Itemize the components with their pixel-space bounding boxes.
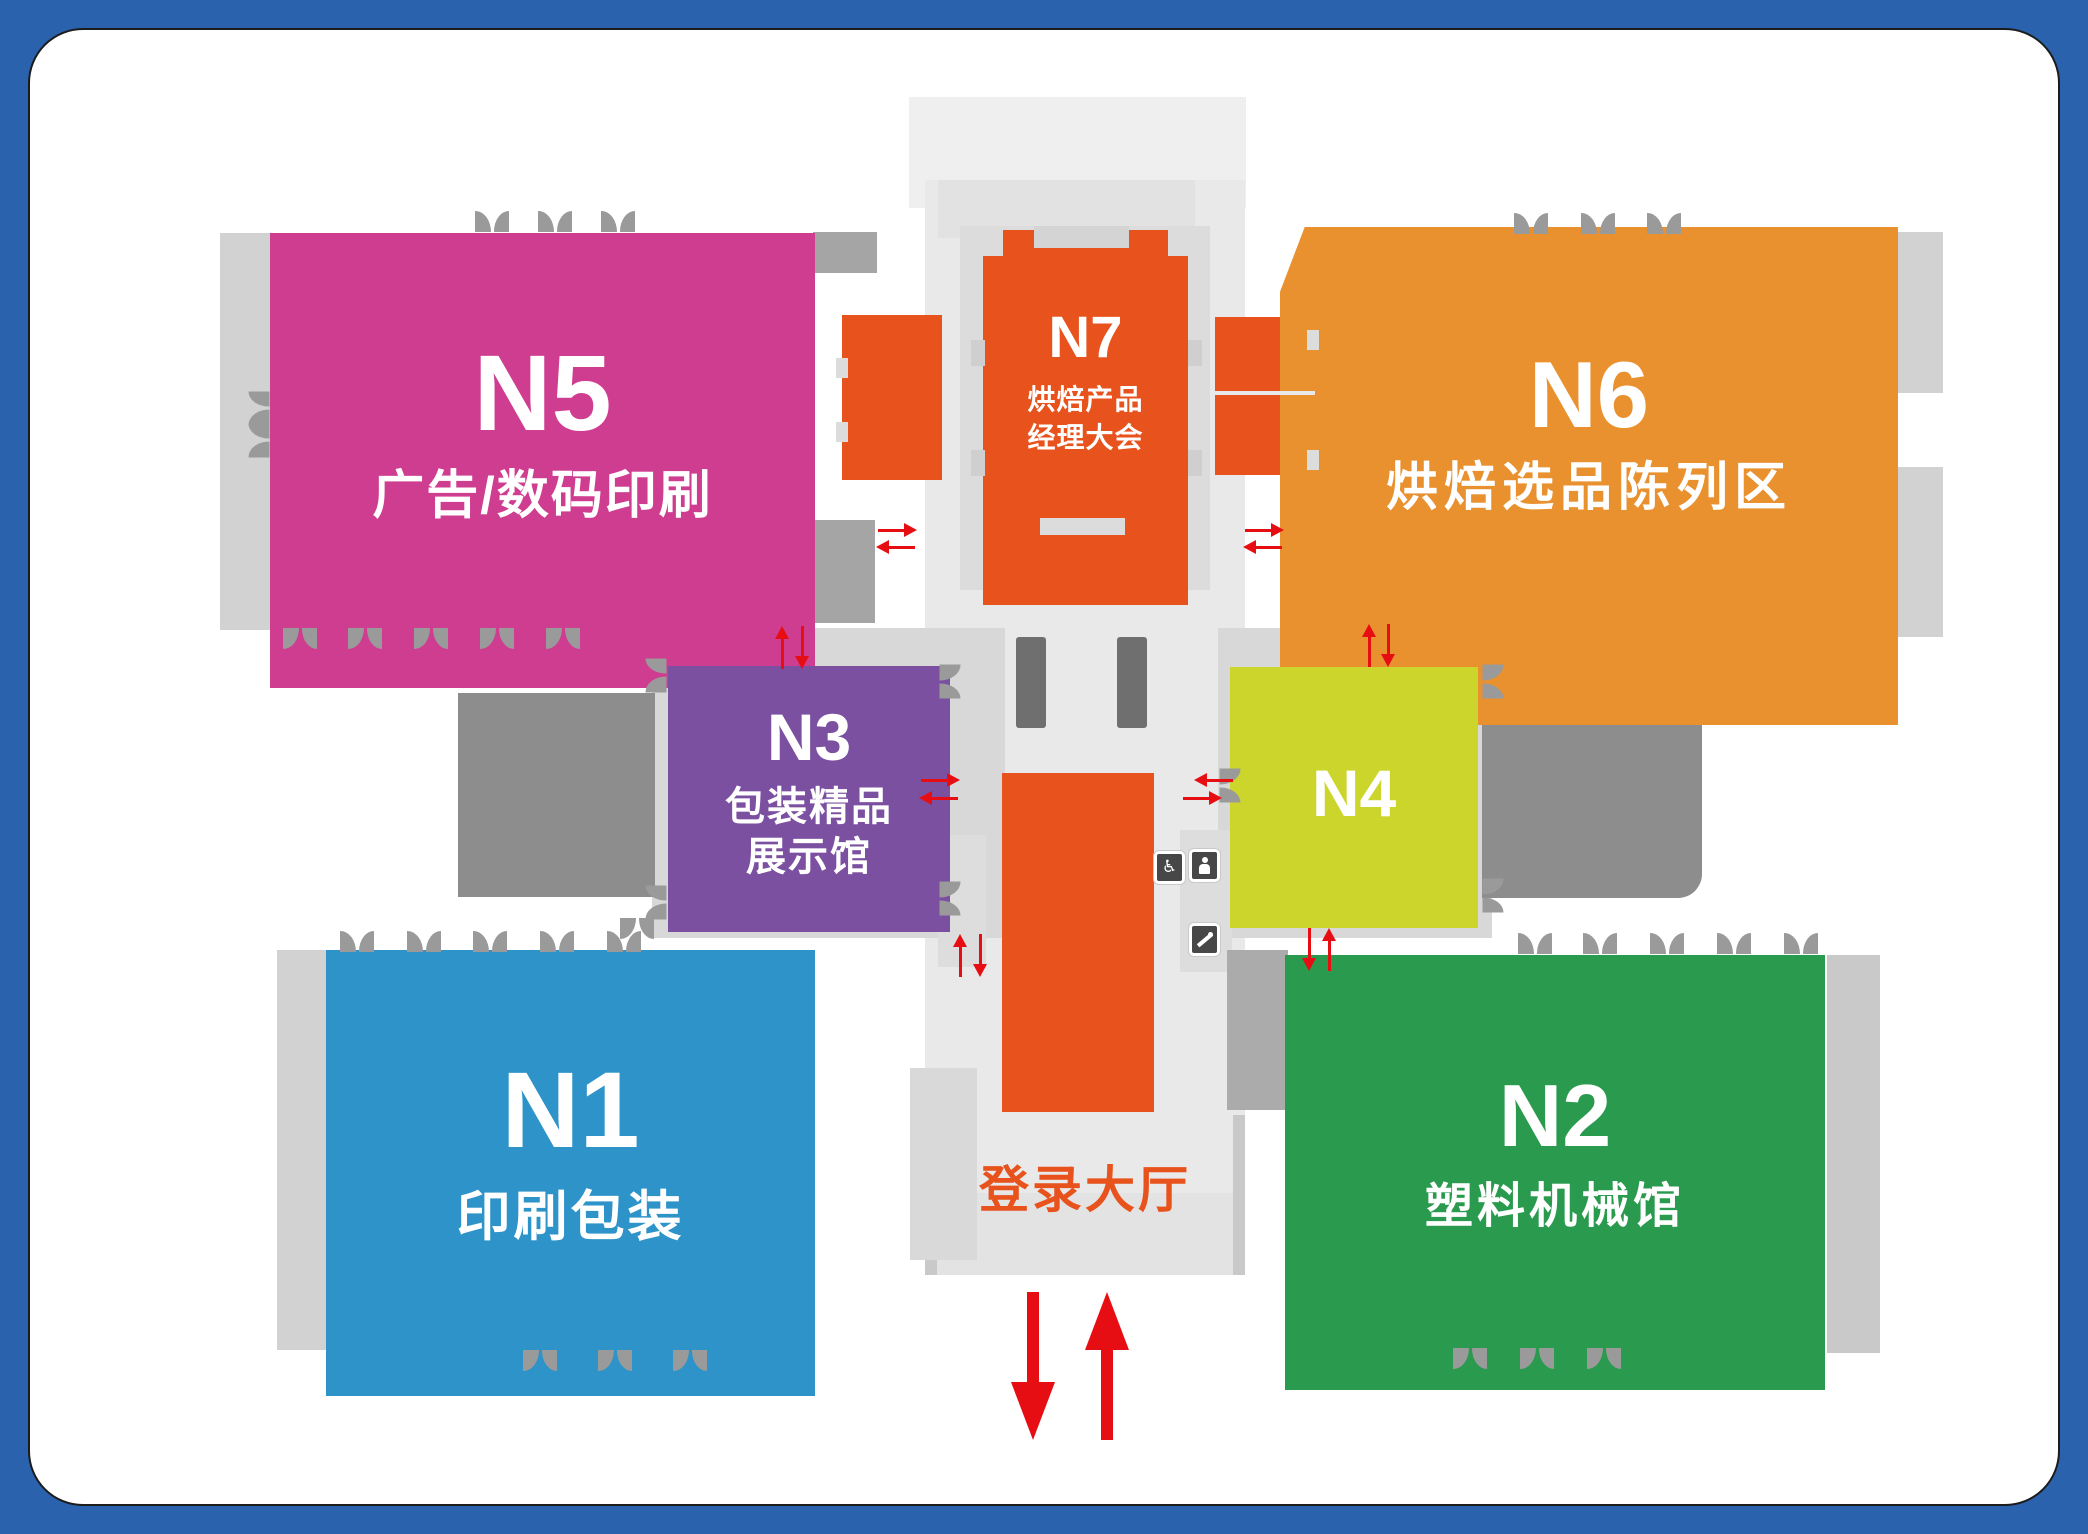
- exhibition-floor-plan: { "map": { "title_context": "exhibition-…: [0, 0, 2088, 1534]
- escalator-left: [1016, 637, 1046, 728]
- entry-arrow-l: [1207, 779, 1233, 782]
- door-swing-icon: [646, 659, 667, 693]
- annex-notch: [1307, 330, 1319, 350]
- door-swing-icon: [340, 931, 374, 952]
- wheelchair-icon: ♿: [1154, 851, 1185, 884]
- door-swing-icon: [1518, 933, 1552, 954]
- hall-n3-region[interactable]: N3 包装精品 展示馆: [668, 666, 950, 932]
- door-swing-icon: [1220, 769, 1241, 803]
- hall-n6-right-strip-bottom: [1898, 467, 1943, 637]
- door-swing-icon: [601, 211, 635, 232]
- entry-arrow-r: [1183, 797, 1209, 800]
- entry-arrow-r: [921, 779, 947, 782]
- entry-arrow-d: [1387, 624, 1390, 654]
- annex-notch: [1307, 450, 1319, 470]
- hall-n7-subtitle: 烘焙产品 经理大会: [1027, 381, 1143, 457]
- door-swing-icon: [475, 211, 509, 232]
- entry-arrow-r: [1245, 529, 1271, 532]
- door-swing-icon: [538, 211, 572, 232]
- n7-side-tab: [971, 340, 985, 366]
- door-swing-icon: [940, 882, 961, 916]
- hall-n3-subtitle-line1: 包装精品: [725, 782, 893, 832]
- hall-n3-subtitle: 包装精品 展示馆: [725, 782, 893, 882]
- entry-arrow-l: [889, 546, 915, 549]
- n7-corner-cut-left: [983, 226, 1003, 256]
- door-swing-icon: [407, 931, 441, 952]
- entry-arrow-r: [878, 529, 904, 532]
- door-swing-icon: [523, 1350, 557, 1371]
- hall-n1-region[interactable]: N1 印刷包装: [326, 950, 815, 1396]
- door-swing-icon: [673, 1350, 707, 1371]
- entry-arrow-l: [1256, 546, 1282, 549]
- registration-lobby-region[interactable]: [1002, 773, 1154, 1112]
- hall-n4-label: N4: [1312, 760, 1396, 827]
- door-swing-icon: [1483, 879, 1504, 913]
- entry-arrow-u: [781, 639, 784, 669]
- door-swing-icon: [283, 628, 317, 649]
- hall-n7-label: N7: [1048, 308, 1122, 367]
- hall-n5-bottom-tab: [813, 520, 875, 623]
- door-swing-icon: [1717, 933, 1751, 954]
- hall-n2-label: N2: [1499, 1071, 1612, 1161]
- door-swing-icon: [1483, 665, 1504, 699]
- hall-n2-subtitle: 塑料机械馆: [1425, 1183, 1685, 1232]
- hall-n4-region[interactable]: N4: [1230, 667, 1478, 928]
- n7-corner-cut-right: [1168, 226, 1188, 256]
- door-swing-icon: [646, 886, 667, 920]
- door-swing-icon: [249, 392, 270, 426]
- door-swing-icon: [348, 628, 382, 649]
- entry-arrow-l: [932, 797, 958, 800]
- door-swing-icon: [1647, 213, 1681, 234]
- hall-n5-label: N5: [473, 338, 611, 448]
- entry-arrow-u: [1368, 637, 1371, 667]
- door-swing-icon: [1520, 1348, 1554, 1369]
- door-swing-icon: [414, 628, 448, 649]
- hall-n7-region[interactable]: N7 烘焙产品 经理大会: [983, 230, 1188, 605]
- hall-n1-label: N1: [501, 1055, 639, 1165]
- door-swing-icon: [1784, 933, 1818, 954]
- n7-top-notch: [1034, 226, 1129, 248]
- door-swing-icon: [940, 665, 961, 699]
- hall-n1-subtitle: 印刷包装: [457, 1190, 685, 1245]
- hall-n6-region[interactable]: N6 烘焙选品陈列区: [1280, 227, 1898, 725]
- escalator-icon: [1189, 923, 1220, 956]
- annex-notch: [836, 422, 848, 442]
- entry-arrow-d: [1308, 928, 1311, 958]
- hall-n2-right-strip: [1827, 955, 1880, 1353]
- entry-arrow-u: [1328, 941, 1331, 971]
- hall-n2-topleft-block: [1227, 950, 1288, 1110]
- entry-arrow-u: [959, 947, 962, 977]
- hall-n6-right-strip-top: [1898, 232, 1943, 393]
- hall-n7-subtitle-line1: 烘焙产品: [1027, 381, 1143, 419]
- n7-side-tab: [1188, 340, 1202, 366]
- n7-side-tab: [1188, 450, 1202, 476]
- hall-n3-label: N3: [767, 704, 851, 771]
- door-swing-icon: [1650, 933, 1684, 954]
- hall-n6-label: N6: [1529, 347, 1649, 443]
- door-swing-icon: [1587, 1348, 1621, 1369]
- hall-n5-subtitle: 广告/数码印刷: [372, 470, 712, 523]
- door-swing-icon: [1581, 213, 1615, 234]
- door-swing-icon: [598, 1350, 632, 1371]
- n7-side-tab: [971, 450, 985, 476]
- door-swing-icon: [249, 424, 270, 458]
- door-swing-icon: [1514, 213, 1548, 234]
- service-bar-left: [458, 693, 655, 897]
- exit-arrow-down: [1011, 1292, 1055, 1440]
- annex-divider: [1215, 391, 1315, 395]
- door-swing-icon: [1453, 1348, 1487, 1369]
- hall-n6-subtitle: 烘焙选品陈列区: [1386, 462, 1792, 515]
- door-swing-icon: [473, 931, 507, 952]
- door-swing-icon: [620, 918, 654, 939]
- annex-notch: [836, 358, 848, 378]
- hall-n2-region[interactable]: N2 塑料机械馆: [1285, 955, 1825, 1390]
- entrance-arrow-up: [1085, 1292, 1129, 1440]
- elevator-icon: [1189, 849, 1220, 882]
- door-swing-icon: [540, 931, 574, 952]
- hall-n3-subtitle-line2: 展示馆: [725, 832, 893, 882]
- door-swing-icon: [480, 628, 514, 649]
- registration-lobby-label: 登录大厅: [925, 1150, 1245, 1222]
- escalator-right: [1117, 637, 1147, 728]
- entry-arrow-d: [979, 934, 982, 964]
- entry-arrow-d: [801, 626, 804, 656]
- door-swing-icon: [1583, 933, 1617, 954]
- hall-n1-left-strip: [277, 950, 326, 1350]
- hall-n5-top-tab: [813, 232, 877, 273]
- hall-n7-subtitle-line2: 经理大会: [1027, 419, 1143, 457]
- n7-bottom-notch: [1040, 518, 1125, 535]
- annex-left-orange: [842, 315, 942, 480]
- hall-n5-region[interactable]: N5 广告/数码印刷: [270, 233, 815, 688]
- door-swing-icon: [546, 628, 580, 649]
- map-card: N5 广告/数码印刷 N6 烘焙选品陈列区 N7 烘焙产品 经理大会 N3 包装…: [28, 28, 2060, 1506]
